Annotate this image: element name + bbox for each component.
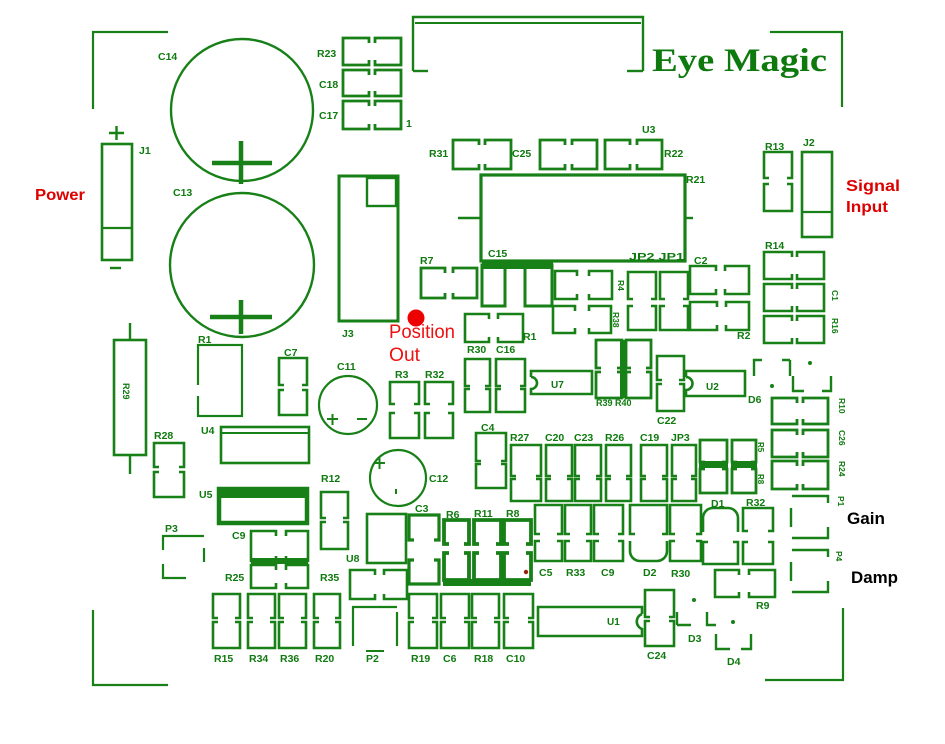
svg-text:R10: R10 [837,398,847,414]
svg-text:J2: J2 [803,137,815,149]
svg-text:R39 R40: R39 R40 [596,398,632,408]
svg-text:R13: R13 [765,141,784,153]
svg-text:R36: R36 [280,653,299,665]
svg-text:D6: D6 [748,394,762,406]
svg-text:Out: Out [389,345,421,366]
svg-text:C2: C2 [694,255,708,267]
svg-text:R38: R38 [611,312,621,328]
svg-text:P2: P2 [366,653,379,665]
svg-text:U2: U2 [706,382,719,393]
svg-text:P3: P3 [165,523,178,535]
svg-text:Signal: Signal [846,178,900,195]
svg-text:R31: R31 [429,148,448,160]
svg-text:C24: C24 [647,650,666,662]
svg-text:C16: C16 [496,344,515,356]
svg-text:C6: C6 [443,653,457,665]
svg-text:R30: R30 [467,344,486,356]
svg-text:R26: R26 [605,432,624,444]
svg-text:R29: R29 [121,383,131,400]
svg-text:C17: C17 [319,110,338,122]
svg-text:Position: Position [389,322,455,343]
svg-text:R24: R24 [837,461,847,477]
svg-text:R4: R4 [616,280,626,291]
svg-text:R1: R1 [523,331,537,343]
svg-text:C22: C22 [657,415,676,427]
svg-text:D2: D2 [643,567,657,579]
svg-text:R16: R16 [830,318,840,334]
svg-text:C12: C12 [429,473,448,485]
svg-text:R23: R23 [317,48,336,60]
svg-text:P1: P1 [836,496,846,507]
svg-text:C26: C26 [837,430,847,446]
svg-text:D1: D1 [711,498,725,510]
svg-text:R3: R3 [395,369,409,381]
svg-text:R19: R19 [411,653,430,665]
svg-text:R32: R32 [746,497,765,509]
svg-text:R15: R15 [214,653,233,665]
svg-text:C7: C7 [284,347,298,359]
svg-text:U4: U4 [201,425,215,437]
svg-text:R21: R21 [686,174,705,186]
svg-text:1: 1 [406,118,412,130]
svg-text:Gain: Gain [847,509,885,528]
svg-text:R14: R14 [765,240,784,252]
svg-text:Eye Magic: Eye Magic [652,43,827,79]
svg-text:C25: C25 [512,148,531,160]
svg-text:P4: P4 [834,551,844,562]
svg-text:C20: C20 [545,432,564,444]
svg-text:R35: R35 [320,572,339,584]
svg-text:U3: U3 [642,124,656,136]
svg-text:R5: R5 [756,442,765,453]
svg-text:R28: R28 [154,430,173,442]
svg-text:R22: R22 [664,148,683,160]
svg-text:R6: R6 [446,509,460,521]
svg-text:R12: R12 [321,473,340,485]
svg-text:Damp: Damp [851,568,898,587]
svg-text:R34: R34 [249,653,268,665]
svg-text:C3: C3 [415,503,429,515]
svg-text:C1: C1 [830,290,840,301]
svg-text:C23: C23 [574,432,593,444]
svg-text:Power: Power [35,187,85,204]
svg-text:JP3: JP3 [671,432,690,444]
svg-text:R8: R8 [506,508,520,520]
svg-text:U8: U8 [346,553,360,565]
svg-text:R27: R27 [510,432,529,444]
svg-text:R8: R8 [756,474,765,485]
svg-text:R1: R1 [198,334,212,346]
svg-text:C9: C9 [601,567,615,579]
svg-text:R7: R7 [420,255,434,267]
svg-text:J3: J3 [342,328,354,340]
svg-text:C19: C19 [640,432,659,444]
svg-text:R18: R18 [474,653,493,665]
svg-text:R32: R32 [425,369,444,381]
svg-text:C14: C14 [158,51,177,63]
svg-text:R11: R11 [474,508,493,520]
svg-text:C18: C18 [319,79,338,91]
svg-text:R20: R20 [315,653,334,665]
svg-text:R25: R25 [225,572,244,584]
svg-text:R2: R2 [737,330,751,342]
svg-text:J1: J1 [139,145,151,157]
svg-text:Input: Input [846,199,888,216]
svg-text:C11: C11 [337,361,356,373]
svg-text:C10: C10 [506,653,525,665]
svg-text:C9: C9 [232,530,246,542]
svg-text:R33: R33 [566,567,585,579]
svg-text:D3: D3 [688,633,702,645]
svg-text:R30: R30 [671,568,690,580]
svg-text:D4: D4 [727,656,741,668]
svg-text:R9: R9 [756,600,770,612]
svg-text:C15: C15 [488,248,507,260]
svg-text:JP2 JP1: JP2 JP1 [629,251,684,263]
svg-text:C13: C13 [173,187,192,199]
svg-text:U7: U7 [551,380,564,391]
svg-text:C5: C5 [539,567,553,579]
svg-text:U5: U5 [199,489,213,501]
svg-text:U1: U1 [607,617,620,628]
svg-text:C4: C4 [481,422,495,434]
